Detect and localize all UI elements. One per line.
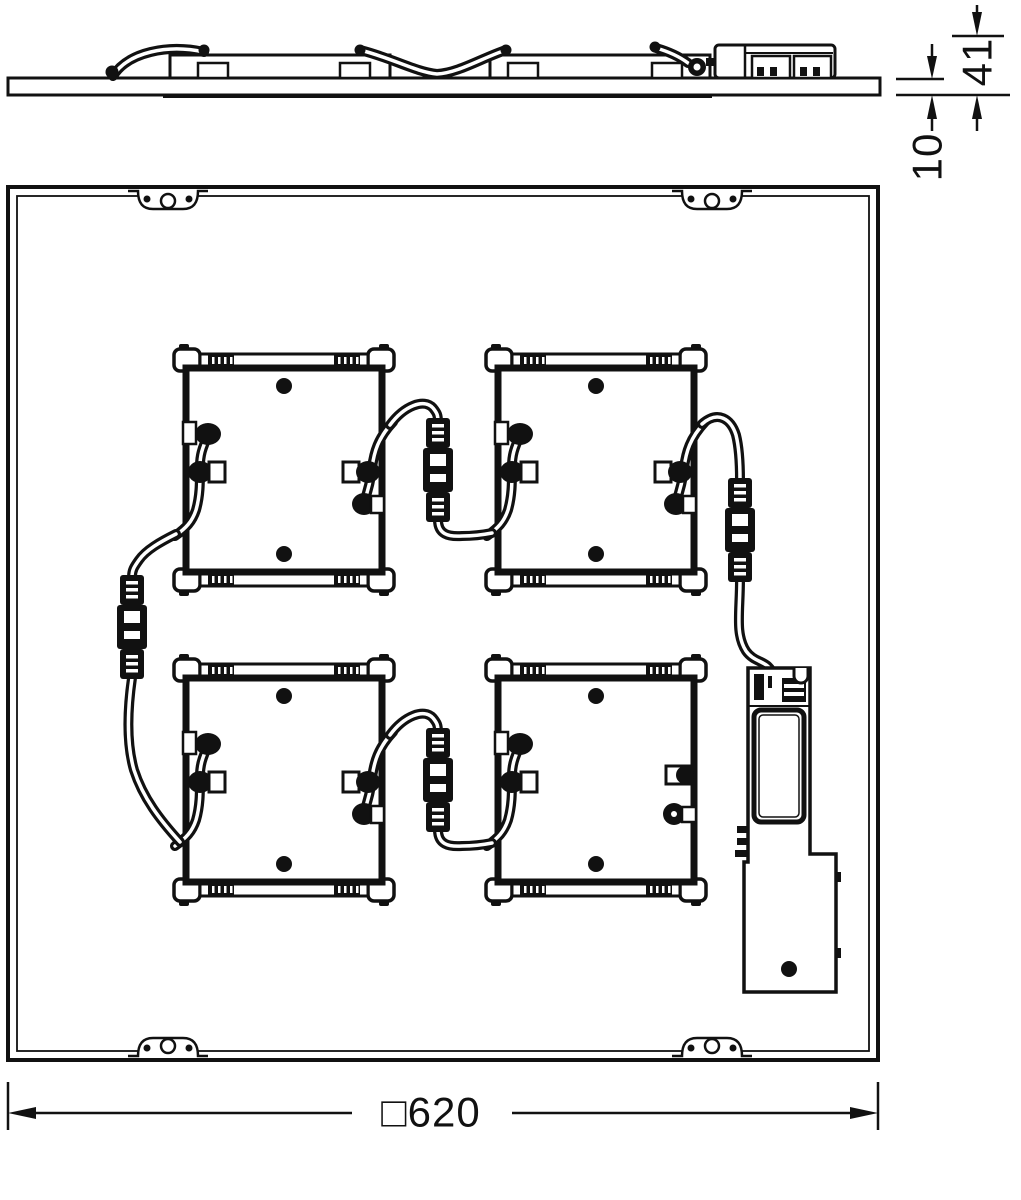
cable-clip	[209, 462, 225, 482]
cable-head	[199, 45, 210, 56]
arrowhead	[972, 95, 982, 119]
clip-slot	[340, 63, 370, 78]
bracket-hole	[186, 1045, 193, 1052]
bracket-hole	[688, 196, 695, 203]
cable-head	[106, 66, 119, 79]
screw	[276, 546, 292, 562]
bracket-center-hole	[161, 194, 175, 208]
driver-comb	[737, 838, 748, 845]
screw	[588, 378, 604, 394]
inline-connector-1	[423, 418, 453, 522]
arrowhead	[850, 1107, 878, 1119]
dimension-width-label: □620	[381, 1089, 480, 1136]
driver-profile	[706, 45, 835, 78]
clip-slot	[198, 63, 228, 78]
terminal-pin	[800, 67, 807, 76]
cable-head	[195, 423, 221, 445]
bracket-hole	[730, 196, 737, 203]
led-module-2	[486, 344, 706, 596]
dimension-height-label: 41	[954, 38, 1001, 87]
screw	[588, 546, 604, 562]
bracket-center-hole	[705, 1039, 719, 1053]
bracket-center-hole	[161, 1039, 175, 1053]
bracket-hole	[144, 1045, 151, 1052]
cable-clip	[371, 806, 384, 823]
cable-clip	[683, 496, 696, 513]
cable-head	[355, 45, 366, 56]
cable-head	[668, 461, 692, 483]
panel-plate-profile	[8, 78, 880, 95]
arrowhead	[8, 1107, 36, 1119]
cable-clip	[495, 422, 508, 444]
arrowhead	[972, 12, 982, 36]
driver-nub	[836, 948, 841, 958]
cable-head	[507, 423, 533, 445]
clip-slot	[508, 63, 538, 78]
inline-connector-2	[725, 478, 755, 582]
cable-clip	[371, 496, 384, 513]
clip-slot	[652, 63, 682, 78]
screw	[781, 961, 797, 977]
led-module-4	[486, 654, 706, 906]
bracket-hole	[186, 196, 193, 203]
led-module-3	[174, 654, 394, 906]
screw	[276, 856, 292, 872]
cable-head	[195, 733, 221, 755]
screw	[276, 688, 292, 704]
terminal-pin	[813, 67, 820, 76]
module-profile-a	[170, 55, 390, 78]
inline-connector-4	[423, 728, 453, 832]
terminal-mark	[768, 676, 772, 688]
bracket-center-hole	[705, 194, 719, 208]
side-view	[8, 42, 880, 99]
arrowhead	[927, 56, 937, 79]
cable-clip	[495, 732, 508, 754]
strain-relief-notch	[794, 668, 808, 683]
cable-clip	[209, 772, 225, 792]
bracket-hole	[730, 1045, 737, 1052]
bracket-hole	[688, 1045, 695, 1052]
arrowhead	[927, 95, 937, 119]
bracket-hole	[144, 196, 151, 203]
inline-connector-3	[117, 575, 147, 679]
cable-head	[501, 45, 512, 56]
end-cap-dot	[671, 811, 677, 817]
dimension-total-height: 41	[896, 5, 1010, 131]
technical-drawing-page: 41 10	[0, 0, 1021, 1200]
led-module-1	[174, 344, 394, 596]
screw	[588, 688, 604, 704]
driver-label	[754, 710, 804, 822]
cable-clip	[521, 772, 537, 792]
cable-clip	[183, 732, 196, 754]
terminal-pin	[770, 67, 777, 76]
screw	[276, 378, 292, 394]
cable-head	[356, 771, 380, 793]
dimension-plate-thickness: 10	[904, 44, 951, 181]
driver-nub	[836, 872, 841, 882]
panel-dimension-drawing: 41 10	[0, 0, 1021, 1200]
dimension-outer-width: □620	[8, 1082, 878, 1136]
cable-clip	[682, 807, 696, 822]
screw	[588, 856, 604, 872]
terminal-pin	[757, 67, 764, 76]
cable-clip	[183, 422, 196, 444]
cable-clip	[521, 462, 537, 482]
cable-head	[650, 42, 661, 53]
terminal-block	[754, 674, 764, 700]
plan-view	[8, 187, 878, 1060]
driver-comb	[737, 826, 748, 833]
cable-head	[507, 733, 533, 755]
dimension-thickness-label: 10	[904, 133, 951, 182]
cable-head	[356, 461, 380, 483]
cable-head	[676, 766, 694, 784]
driver-comb	[735, 850, 748, 857]
